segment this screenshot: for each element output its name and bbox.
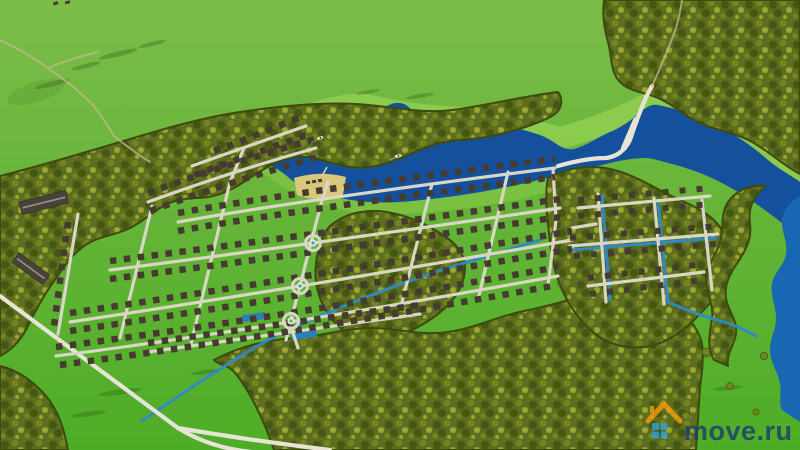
aerial-masterplan-image: move.ru — [0, 0, 800, 450]
fountain — [298, 284, 301, 287]
masterplan-render: move.ru — [0, 0, 800, 450]
logo-chimney — [650, 406, 654, 413]
beach-area — [294, 174, 346, 199]
cabin — [318, 179, 322, 183]
cabin — [312, 180, 316, 184]
watermark-text: move.ru — [684, 416, 793, 446]
tree — [760, 352, 767, 359]
tree — [753, 409, 759, 415]
tree — [702, 348, 710, 356]
tree — [727, 383, 734, 390]
fountain — [311, 241, 314, 244]
cabin — [306, 181, 310, 185]
